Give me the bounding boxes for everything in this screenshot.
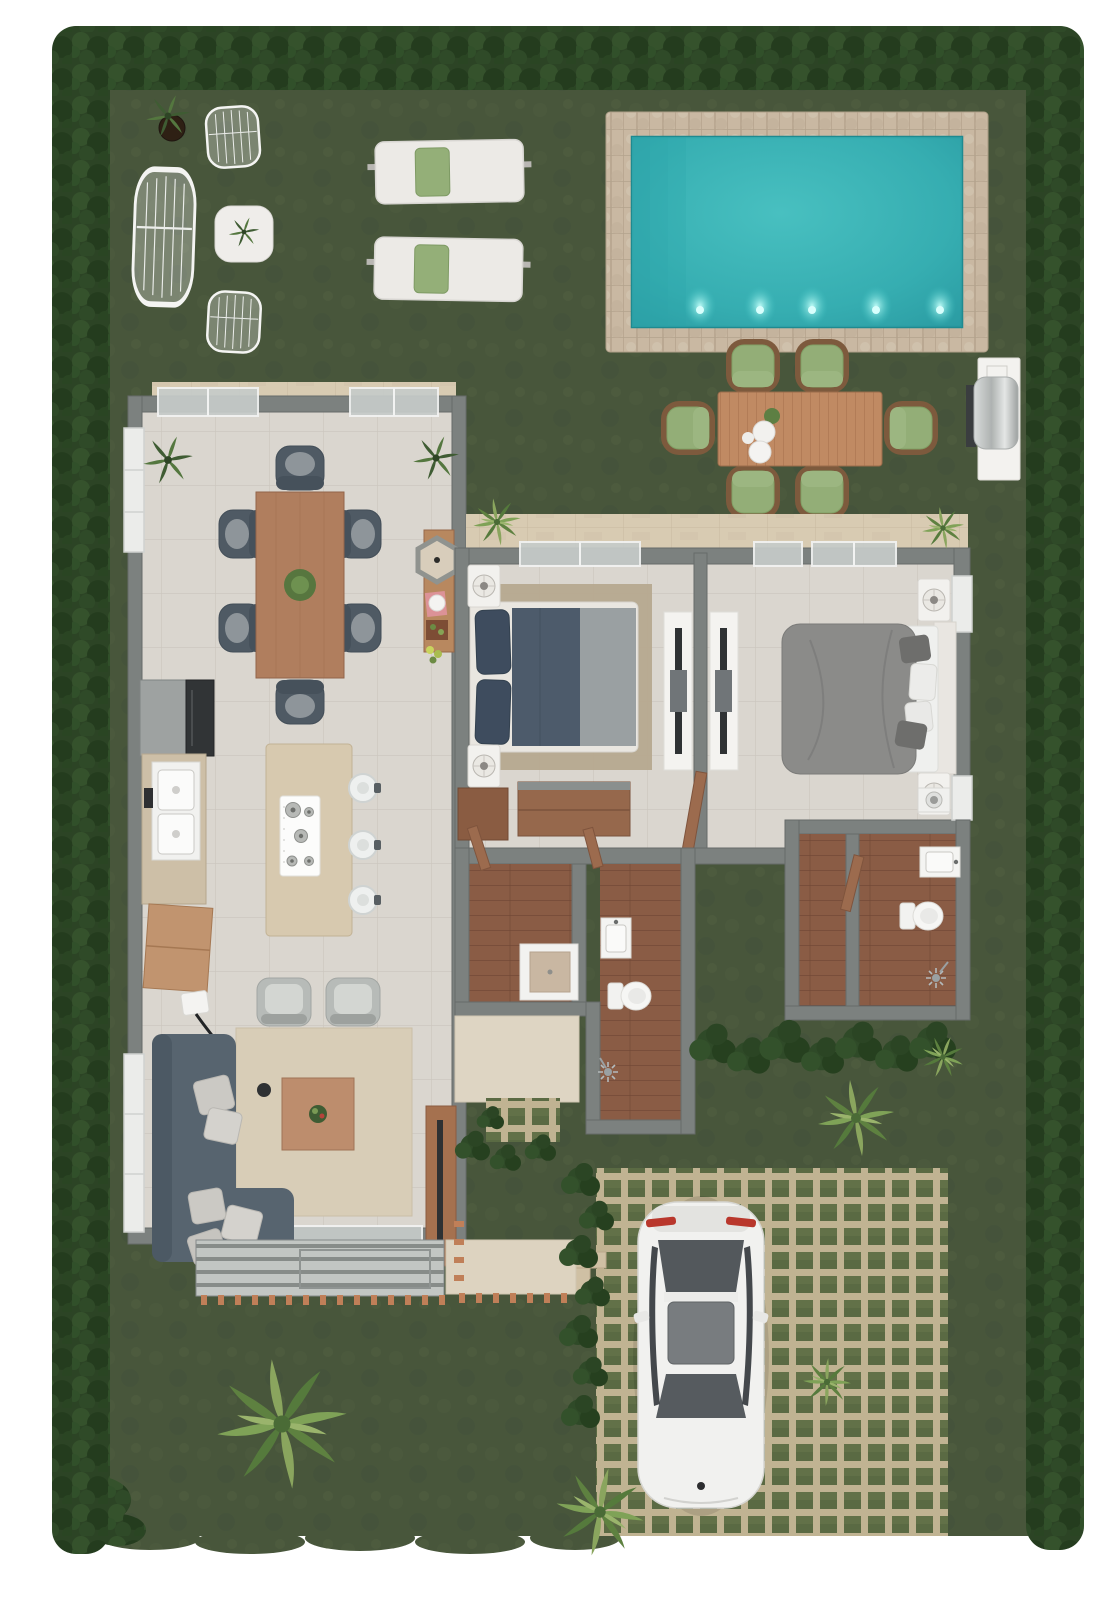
car-windshield	[656, 1374, 746, 1418]
console-table	[418, 530, 456, 664]
outdoor-chair	[884, 401, 938, 455]
car-emblem	[697, 1482, 705, 1490]
hedge-right	[1026, 26, 1084, 1550]
walkin-corridor-floor	[799, 834, 846, 1006]
bathroom2	[785, 820, 970, 1020]
tv-unit-bedroom1	[664, 612, 692, 770]
window-left-living	[124, 1054, 144, 1232]
plate	[753, 421, 775, 443]
bathroom1-sink	[601, 918, 631, 958]
bathroom2-sink	[920, 847, 960, 877]
car-roof	[664, 1292, 738, 1302]
washer	[918, 788, 950, 812]
rear-deck	[196, 1240, 576, 1296]
pool-steps	[632, 137, 686, 327]
pillow	[909, 663, 937, 701]
wood-box	[426, 620, 448, 640]
window-left-top	[124, 428, 144, 552]
pillow	[898, 634, 931, 664]
sofa-pillow	[187, 1187, 226, 1224]
faucet	[144, 788, 153, 808]
wire-chair	[206, 291, 261, 354]
nightstand	[468, 565, 500, 607]
side-walkway	[446, 1240, 576, 1294]
plate-small	[742, 432, 754, 444]
car	[633, 1196, 769, 1516]
kitchen-cabinet	[143, 904, 213, 992]
armchair	[326, 978, 380, 1026]
armchair	[257, 978, 311, 1026]
scene-svg	[0, 0, 1120, 1600]
pillow	[475, 609, 511, 674]
pillow	[894, 720, 928, 751]
wall-bottom-left	[455, 848, 799, 864]
white-vase	[429, 595, 445, 611]
outdoor-chair	[726, 339, 780, 393]
fridge	[140, 680, 214, 756]
sofa-pillow	[203, 1107, 243, 1145]
outdoor-table	[718, 392, 882, 466]
bathroom2-shower	[926, 968, 946, 988]
wire-chair	[205, 105, 261, 168]
nightstand	[918, 579, 950, 621]
outdoor-chair	[795, 465, 849, 519]
wire-sofa	[132, 168, 196, 305]
car-rear-window	[658, 1240, 744, 1292]
swimming-pool	[606, 112, 988, 352]
tv-unit-bedroom2	[710, 612, 738, 770]
dining-chair	[276, 680, 324, 724]
kitchen-island	[266, 744, 352, 936]
bedroom2-bed	[782, 622, 956, 774]
outdoor-chair	[795, 339, 849, 393]
car-sunroof	[668, 1302, 734, 1364]
plate	[749, 441, 771, 463]
bathroom1-shower	[598, 1062, 618, 1082]
flowers	[426, 646, 434, 654]
sun-lounger	[366, 237, 531, 302]
bedroom1-bed	[470, 602, 638, 752]
bbq-lid	[974, 377, 1018, 449]
tv	[437, 1120, 443, 1250]
decor-bowl	[257, 1083, 271, 1097]
shower-tray	[520, 944, 578, 1000]
nightstand	[468, 745, 500, 787]
wall-bottom-right	[785, 820, 970, 834]
floor-plan-image	[0, 0, 1120, 1600]
hedge-left	[52, 26, 110, 1554]
bedroom1-dresser	[518, 782, 630, 836]
bathroom1-toilet	[608, 982, 651, 1010]
dining-chair	[276, 446, 324, 490]
outdoor-chair	[726, 465, 780, 519]
pillow	[475, 679, 511, 744]
hedge-top	[58, 26, 1078, 90]
bedroom1-closet	[458, 788, 508, 840]
outdoor-chair	[661, 401, 715, 455]
bedroom-wing	[455, 514, 972, 864]
sun-lounger	[367, 139, 532, 204]
bathroom2-toilet	[900, 902, 943, 930]
kitchen-counter	[142, 754, 206, 904]
